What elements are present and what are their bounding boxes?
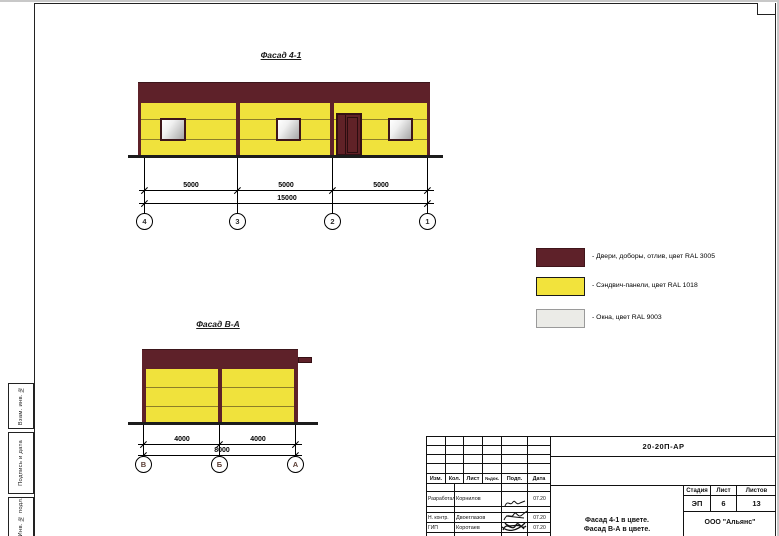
dim-total-value: 8000 — [214, 447, 230, 454]
axis-bubble-2: 2 — [324, 213, 341, 230]
rev-header-kol: Кол. — [446, 474, 464, 484]
sheet-edge-top — [0, 0, 779, 2]
axis-bubble-a: А — [287, 456, 304, 473]
sig-name: Двоеглазов — [455, 513, 502, 523]
sig-name: Корнилов — [455, 492, 502, 507]
axis-trim-2 — [330, 83, 334, 156]
dim-value: 4000 — [174, 436, 190, 443]
legend-label-doors: - Двери, доборы, отлив, цвет RAL 3005 — [592, 253, 715, 260]
drawing-sheet: Фасад 4-1 5000 5000 5000 15000 4 3 2 1 Ф… — [0, 0, 779, 536]
dim-value: 5000 — [183, 182, 199, 189]
axis-bubble-v: В — [135, 456, 152, 473]
stamp-label: Подпись и дата — [18, 440, 24, 486]
corner-trim-right — [427, 83, 430, 156]
roof-drain-stub — [298, 357, 312, 363]
document-code: 20-20П-АР — [643, 442, 685, 451]
signature-scribble — [500, 518, 530, 535]
extension-line — [332, 158, 333, 214]
sheet-subject-cell: Фасад 4-1 в цвете. Фасад В-А в цвете. — [551, 486, 684, 536]
dim-value: 5000 — [278, 182, 294, 189]
dim-value: 5000 — [373, 182, 389, 189]
corner-trim-left — [138, 83, 141, 156]
stamp-box-vzam-inv: Взам. инв. № — [8, 383, 34, 429]
sig-date: 07.20 — [528, 513, 551, 523]
sig-role: Разработал — [427, 492, 455, 507]
subject-line-1: Фасад 4-1 в цвете. — [585, 516, 649, 525]
stamp-box-podpis-data: Подпись и дата — [8, 432, 34, 494]
legend-label-windows: - Окна, цвет RAL 9003 — [592, 314, 662, 321]
stage-table: Стадия Лист Листов ЭП 6 13 — [684, 486, 776, 512]
dimension-line-total — [139, 203, 434, 204]
frame-line-top — [34, 3, 775, 4]
document-code-cell: 20-20П-АР — [551, 437, 776, 457]
sheet-count: 13 — [737, 496, 776, 512]
facade-b-a-title: Фасад В-А — [163, 319, 273, 329]
ground-line-facade-b-a — [128, 422, 318, 425]
signature-table: Разработал Корнилов 07.20 Н. контр. Двое… — [427, 484, 551, 536]
window-2 — [276, 118, 301, 141]
door-leaf-panel — [347, 117, 358, 153]
legend-swatch-panels — [536, 277, 585, 296]
extension-line — [144, 158, 145, 214]
subject-line-2: Фасад В-А в цвете. — [584, 525, 650, 534]
extension-line — [295, 425, 296, 456]
frame-corner-box — [757, 3, 775, 15]
legend-label-panels: - Сэндвич-панели, цвет RAL 1018 — [592, 282, 698, 289]
axis-bubble-1: 1 — [419, 213, 436, 230]
rev-header-ndok: №док. — [483, 474, 502, 484]
facade-b-a-drawing — [142, 349, 298, 422]
axis-trim-center — [218, 350, 222, 423]
axis-bubble-3: 3 — [229, 213, 246, 230]
sig-name: Коротаев — [455, 523, 502, 533]
window-3 — [388, 118, 413, 141]
legend-swatch-windows — [536, 309, 585, 328]
sig-date: 07.20 — [528, 492, 551, 507]
entrance-door — [336, 113, 362, 156]
ground-line-facade-4-1 — [128, 155, 443, 158]
facade-4-1-title: Фасад 4-1 — [226, 50, 336, 60]
rev-header-podp: Подп. — [502, 474, 528, 484]
empty-cell — [551, 457, 776, 486]
sheets-header: Листов — [737, 486, 776, 496]
frame-line-left — [34, 3, 35, 536]
axis-trim-3 — [236, 83, 240, 156]
sheet-number: 6 — [711, 496, 737, 512]
company-name: ООО "Альянс" — [705, 519, 756, 526]
rev-header-izm: Изм. — [427, 474, 446, 484]
facade-4-1-drawing — [138, 82, 430, 155]
facade-4-1-top-band — [138, 83, 430, 103]
revision-table: Изм. Кол. Лист №док. Подп. Дата — [427, 437, 551, 484]
extension-line — [237, 158, 238, 214]
rev-header-list: Лист — [464, 474, 483, 484]
sheet-header: Лист — [711, 486, 737, 496]
sig-role: Н. контр. — [427, 513, 455, 523]
corner-trim-left — [142, 350, 146, 423]
dim-total-value: 15000 — [277, 195, 296, 202]
sig-role: ГИП — [427, 523, 455, 533]
stamp-label: Инв. № подл. — [18, 497, 24, 536]
extension-line — [427, 158, 428, 214]
stamp-box-inv-podl: Инв. № подл. — [8, 497, 34, 536]
door-leaf-split — [345, 115, 346, 154]
extension-line — [143, 425, 144, 456]
stamp-label: Взам. инв. № — [18, 386, 24, 425]
axis-bubble-4: 4 — [136, 213, 153, 230]
company-cell: ООО "Альянс" — [684, 512, 776, 536]
stage-header: Стадия — [684, 486, 711, 496]
sig-date: 07.20 — [528, 523, 551, 533]
stage-value: ЭП — [684, 496, 711, 512]
window-1 — [160, 118, 186, 141]
rev-header-data: Дата — [528, 474, 551, 484]
title-block: Изм. Кол. Лист №док. Подп. Дата Разработ… — [426, 436, 775, 536]
legend-swatch-doors — [536, 248, 585, 267]
dimension-line — [139, 190, 434, 191]
dim-value: 4000 — [250, 436, 266, 443]
axis-bubble-b: Б — [211, 456, 228, 473]
